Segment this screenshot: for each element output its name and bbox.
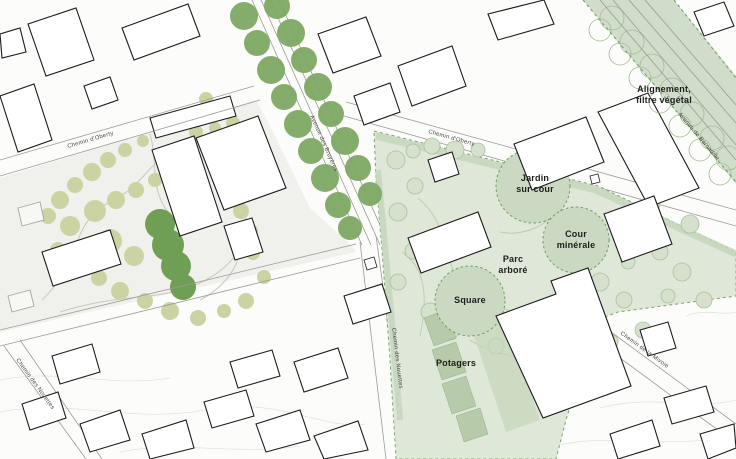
label-parc-line1: Parc [503,254,523,264]
existing-tree [83,163,101,181]
avenue-tree [284,110,312,138]
label-cour-line1: Cour [565,229,587,239]
zone-tree [673,263,691,281]
label-alignement-line2: filtre végétal [636,95,692,105]
avenue-tree [325,192,351,218]
zone-tree [406,144,420,158]
existing-tree [137,135,149,147]
existing-tree [124,246,144,266]
zone-tree [387,151,405,169]
existing-tree [137,293,153,309]
zone-tree [696,292,712,308]
avenue-tree [277,19,305,47]
junction-marker [590,174,600,184]
dense-tree [170,274,196,300]
label-jardin-line1: Jardin [521,173,549,183]
existing-tree [100,152,116,168]
zone-tree [390,274,406,290]
label-potagers: Potagers [436,358,476,368]
existing-tree [107,191,125,209]
avenue-tree [345,155,371,181]
zone-tree [681,215,699,233]
avenue-tree [338,216,362,240]
avenue-tree [244,30,270,56]
avenue-tree [257,56,285,84]
zone-tree [389,203,407,221]
existing-tree [111,282,129,300]
label-cour-line2: minérale [557,240,596,250]
zone-tree [424,138,440,154]
zone-tree [661,289,675,303]
site-plan-map: Chemin d'Oberty Chemin d'Oberty Avenue d… [0,0,736,459]
avenue-tree [271,84,297,110]
existing-tree [67,177,83,193]
existing-tree [84,200,106,222]
avenue-tree [304,73,332,101]
existing-tree [257,270,271,284]
existing-tree [128,182,144,198]
avenue-tree [318,101,344,127]
existing-tree [60,216,80,236]
existing-tree [118,143,132,157]
label-parc-line2: arboré [498,265,527,275]
label-alignement-line1: Alignement, [637,84,691,94]
site-plan-svg: Chemin d'Oberty Chemin d'Oberty Avenue d… [0,0,736,459]
avenue-tree [291,47,317,73]
existing-tree [217,304,231,318]
label-jardin-line2: sur cour [516,184,554,194]
zone-tree [616,292,632,308]
existing-tree [190,310,206,326]
avenue-tree [358,182,382,206]
avenue-tree [230,2,258,30]
existing-tree [238,293,254,309]
existing-tree [51,191,69,209]
label-square: Square [454,295,486,305]
zone-tree [407,178,423,194]
avenue-tree [331,127,359,155]
